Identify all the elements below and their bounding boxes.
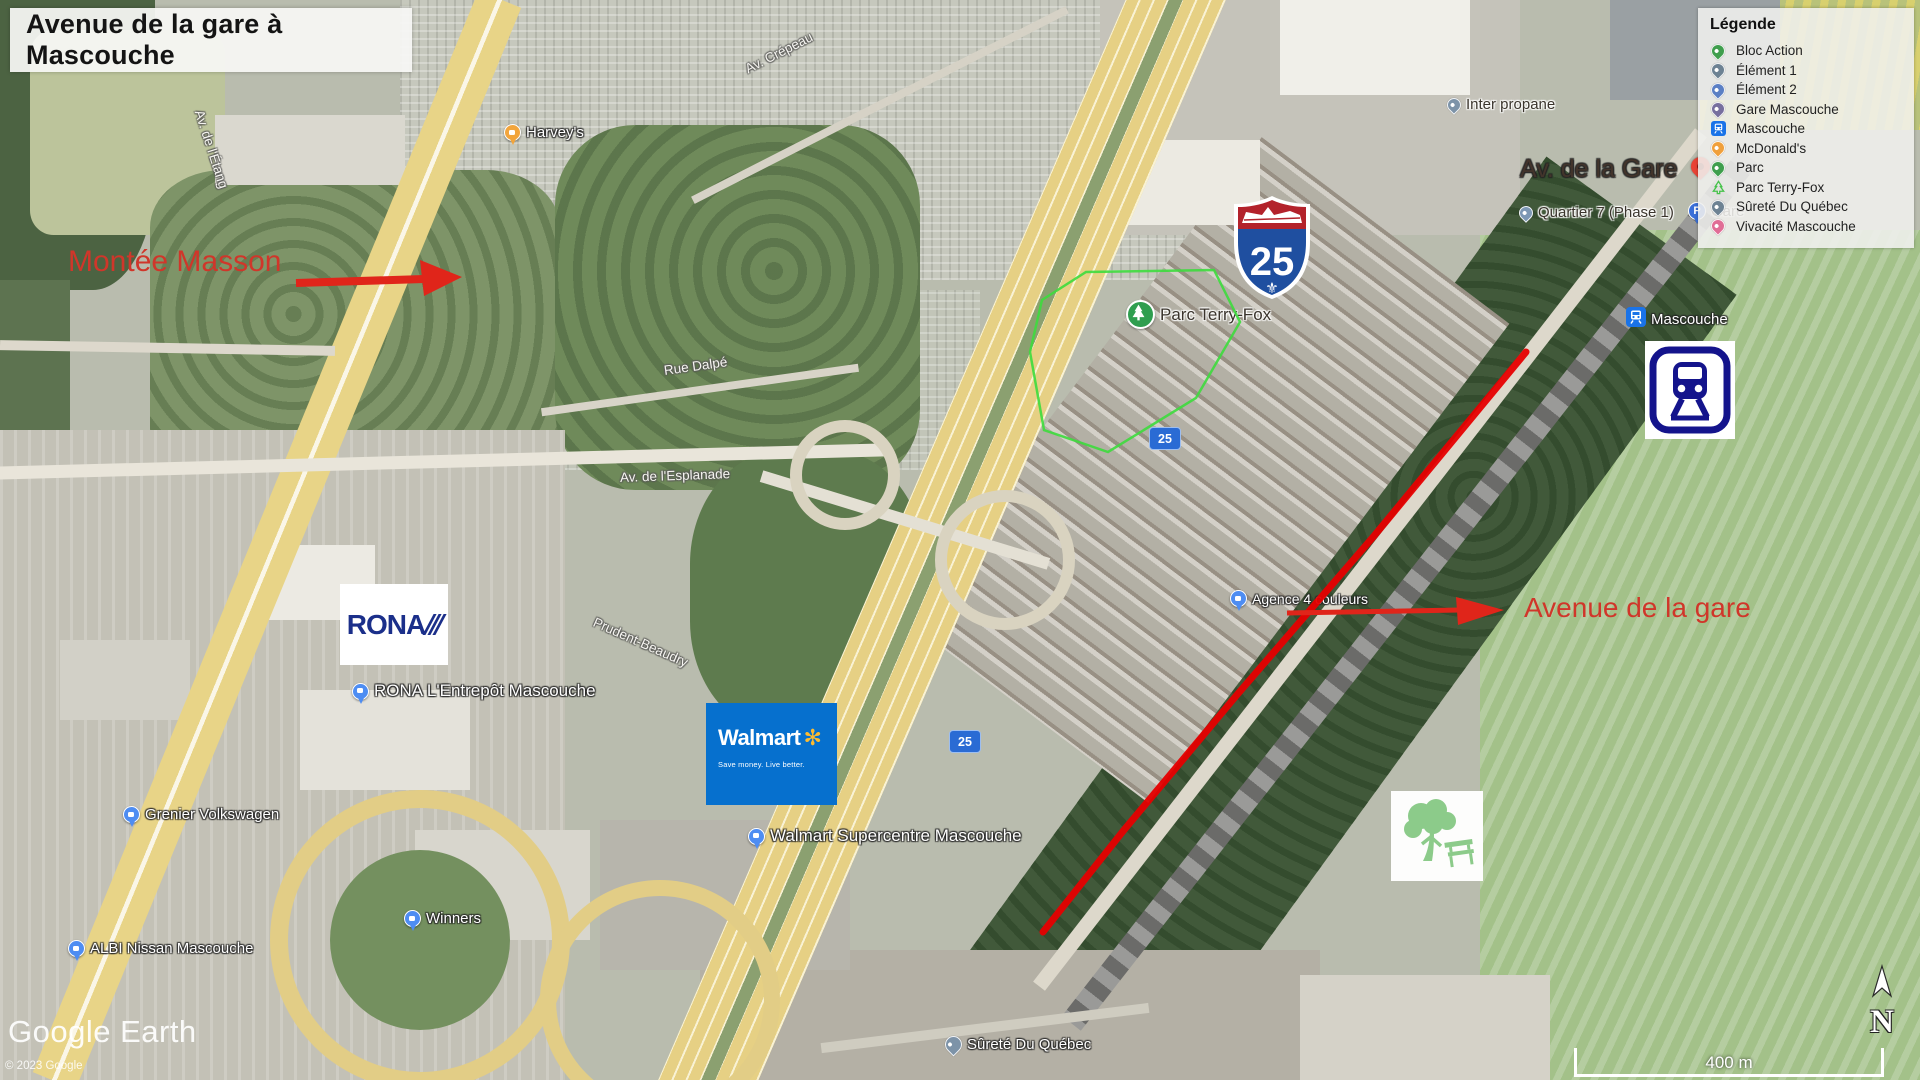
placemark-label: Sûreté Du Québec bbox=[967, 1036, 1091, 1053]
placemark-grenier-volkswagen[interactable]: Grenier Volkswagen bbox=[123, 806, 279, 823]
placemark-albi-nissan[interactable]: ALBI Nissan Mascouche bbox=[68, 940, 253, 957]
placemark-label: Mascouche bbox=[1651, 311, 1728, 328]
building-retail-1 bbox=[300, 690, 470, 790]
building-dealer bbox=[60, 640, 190, 720]
shield-number: 25 bbox=[1250, 240, 1295, 284]
legend-panel: Légende Bloc Action Élément 1 Élément 2 … bbox=[1698, 8, 1914, 248]
placemark-surete-quebec[interactable]: Sûreté Du Québec bbox=[945, 1036, 1091, 1053]
legend-item-label: Mascouche bbox=[1736, 121, 1805, 136]
walmart-tagline: Save money. Live better. bbox=[718, 760, 837, 769]
legend-item-label: Bloc Action bbox=[1736, 43, 1803, 58]
store-pin-icon bbox=[352, 683, 369, 700]
legend-item-label: Élément 1 bbox=[1736, 63, 1797, 78]
title-box: Avenue de la gare à Mascouche bbox=[10, 8, 412, 72]
copyright-text: © 2023 Google bbox=[5, 1060, 83, 1072]
legend-item-label: McDonald's bbox=[1736, 141, 1806, 156]
store-pin-icon bbox=[123, 806, 140, 823]
building-white-top-right bbox=[1280, 0, 1470, 95]
placemark-inter-propane[interactable]: Inter propane bbox=[1447, 96, 1555, 113]
walmart-logo-text: Walmart bbox=[718, 725, 800, 751]
placemark-agence-4-couleurs[interactable]: Agence 4 couleurs bbox=[1230, 590, 1368, 607]
legend-item-element-1: Élément 1 bbox=[1710, 61, 1904, 81]
placemark-label: Agence 4 couleurs bbox=[1252, 591, 1368, 607]
ramp-infield-green bbox=[330, 850, 510, 1030]
placemark-quartier7[interactable]: Quartier 7 (Phase 1) bbox=[1519, 204, 1674, 221]
placemark-label: Quartier 7 (Phase 1) bbox=[1538, 204, 1674, 221]
street-name-label: Av. de la Gare bbox=[1520, 155, 1678, 184]
pin-icon bbox=[1444, 95, 1464, 115]
north-label: N bbox=[1856, 1009, 1908, 1035]
legend-item-element-2: Élément 2 bbox=[1710, 80, 1904, 100]
placemark-rona-entrepot[interactable]: RONA L'Entrepôt Mascouche bbox=[352, 681, 596, 701]
legend-item-label: Parc Terry-Fox bbox=[1736, 180, 1824, 195]
legend-header: Légende bbox=[1710, 16, 1904, 34]
legend-item-mcdonalds: McDonald's bbox=[1710, 139, 1904, 159]
placemark-label: RONA L'Entrepôt Mascouche bbox=[374, 681, 596, 701]
store-pin-icon bbox=[748, 828, 765, 845]
ramp-loop-center-large bbox=[935, 490, 1075, 630]
placemark-label: Inter propane bbox=[1466, 96, 1555, 113]
rona-logo-text: RONA bbox=[347, 609, 425, 641]
pin-icon bbox=[1708, 60, 1728, 80]
park-icon bbox=[1391, 791, 1483, 886]
placemark-walmart-supercentre[interactable]: Walmart Supercentre Mascouche bbox=[748, 826, 1022, 846]
pin-icon bbox=[1516, 203, 1536, 223]
scale-bar: 400 m bbox=[1574, 1048, 1884, 1077]
pin-icon bbox=[1708, 158, 1728, 178]
street-label-av-de-la-gare: Av. de la Gare bbox=[1520, 155, 1710, 184]
placemark-label: Winners bbox=[426, 910, 481, 927]
legend-item-bloc-action: Bloc Action bbox=[1710, 41, 1904, 61]
scale-bar-label: 400 m bbox=[1705, 1054, 1752, 1074]
north-arrow-icon bbox=[1860, 964, 1904, 1004]
store-pin-icon bbox=[404, 910, 421, 927]
pin-icon bbox=[1708, 197, 1728, 217]
police-pin-icon bbox=[941, 1032, 965, 1056]
train-square-icon bbox=[1710, 121, 1726, 136]
rona-stripes-icon bbox=[428, 614, 441, 635]
train-station-icon bbox=[1645, 341, 1735, 444]
rona-logo: RONA bbox=[340, 584, 448, 665]
placemark-label: Harvey's bbox=[526, 124, 584, 141]
placemark-harveys[interactable]: Harvey's bbox=[504, 124, 584, 141]
pin-icon bbox=[1708, 41, 1728, 61]
pin-icon bbox=[1708, 138, 1728, 158]
restaurant-pin-icon bbox=[504, 124, 521, 141]
pin-icon bbox=[1708, 99, 1728, 119]
annotation-avenue-de-la-gare: Avenue de la gare bbox=[1524, 592, 1751, 624]
pin-icon bbox=[1708, 80, 1728, 100]
legend-item-label: Vivacité Mascouche bbox=[1736, 219, 1856, 234]
placemark-label: ALBI Nissan Mascouche bbox=[90, 940, 253, 957]
store-pin-icon bbox=[1230, 590, 1247, 607]
route-marker-25-south: 25 bbox=[949, 730, 981, 753]
legend-item-vivacite: Vivacité Mascouche bbox=[1710, 217, 1904, 237]
walmart-spark-icon: ✻ bbox=[803, 727, 821, 749]
legend-item-mascouche: Mascouche bbox=[1710, 119, 1904, 139]
legend-item-gare-mascouche: Gare Mascouche bbox=[1710, 100, 1904, 120]
placemark-label: Grenier Volkswagen bbox=[145, 806, 279, 823]
placemark-label: Parc Terry-Fox bbox=[1160, 305, 1271, 325]
legend-item-label: Gare Mascouche bbox=[1736, 102, 1839, 117]
placemark-mascouche-station[interactable]: Mascouche bbox=[1626, 307, 1728, 332]
legend-item-parc-terry-fox: Parc Terry-Fox bbox=[1710, 178, 1904, 198]
store-pin-icon bbox=[68, 940, 85, 957]
pin-icon bbox=[1708, 216, 1728, 236]
satellite-bottomright-yard bbox=[1300, 975, 1550, 1080]
legend-item-label: Élément 2 bbox=[1736, 82, 1797, 97]
map-canvas[interactable]: Montée Masson Avenue de la gare 25 ⚜ 25 … bbox=[0, 0, 1920, 1080]
north-indicator: N bbox=[1856, 964, 1908, 1035]
route-marker-25-north: 25 bbox=[1149, 427, 1181, 450]
highway-25-shield: 25 ⚜ bbox=[1232, 195, 1312, 306]
legend-item-label: Sûreté Du Québec bbox=[1736, 199, 1848, 214]
placemark-label: Walmart Supercentre Mascouche bbox=[770, 826, 1022, 846]
google-earth-logo: Google Earth bbox=[8, 1014, 197, 1050]
legend-item-surete: Sûreté Du Québec bbox=[1710, 197, 1904, 217]
placemark-parc-terry-fox[interactable]: Parc Terry-Fox bbox=[1126, 300, 1271, 329]
train-square-icon bbox=[1626, 307, 1646, 332]
page-title: Avenue de la gare à Mascouche bbox=[26, 9, 412, 71]
legend-item-parc: Parc bbox=[1710, 158, 1904, 178]
park-pin-icon bbox=[1126, 300, 1155, 329]
street-label-prudent-beaudry: Prudent-Beaudry bbox=[591, 615, 690, 670]
legend-item-label: Parc bbox=[1736, 160, 1764, 175]
annotation-montee-masson: Montée Masson bbox=[68, 245, 281, 279]
tree-icon bbox=[1710, 180, 1726, 195]
building-mall-top bbox=[215, 115, 405, 185]
ramp-loop-center-small bbox=[790, 420, 900, 530]
walmart-logo: Walmart ✻ Save money. Live better. bbox=[706, 703, 837, 805]
placemark-winners[interactable]: Winners bbox=[404, 910, 481, 927]
